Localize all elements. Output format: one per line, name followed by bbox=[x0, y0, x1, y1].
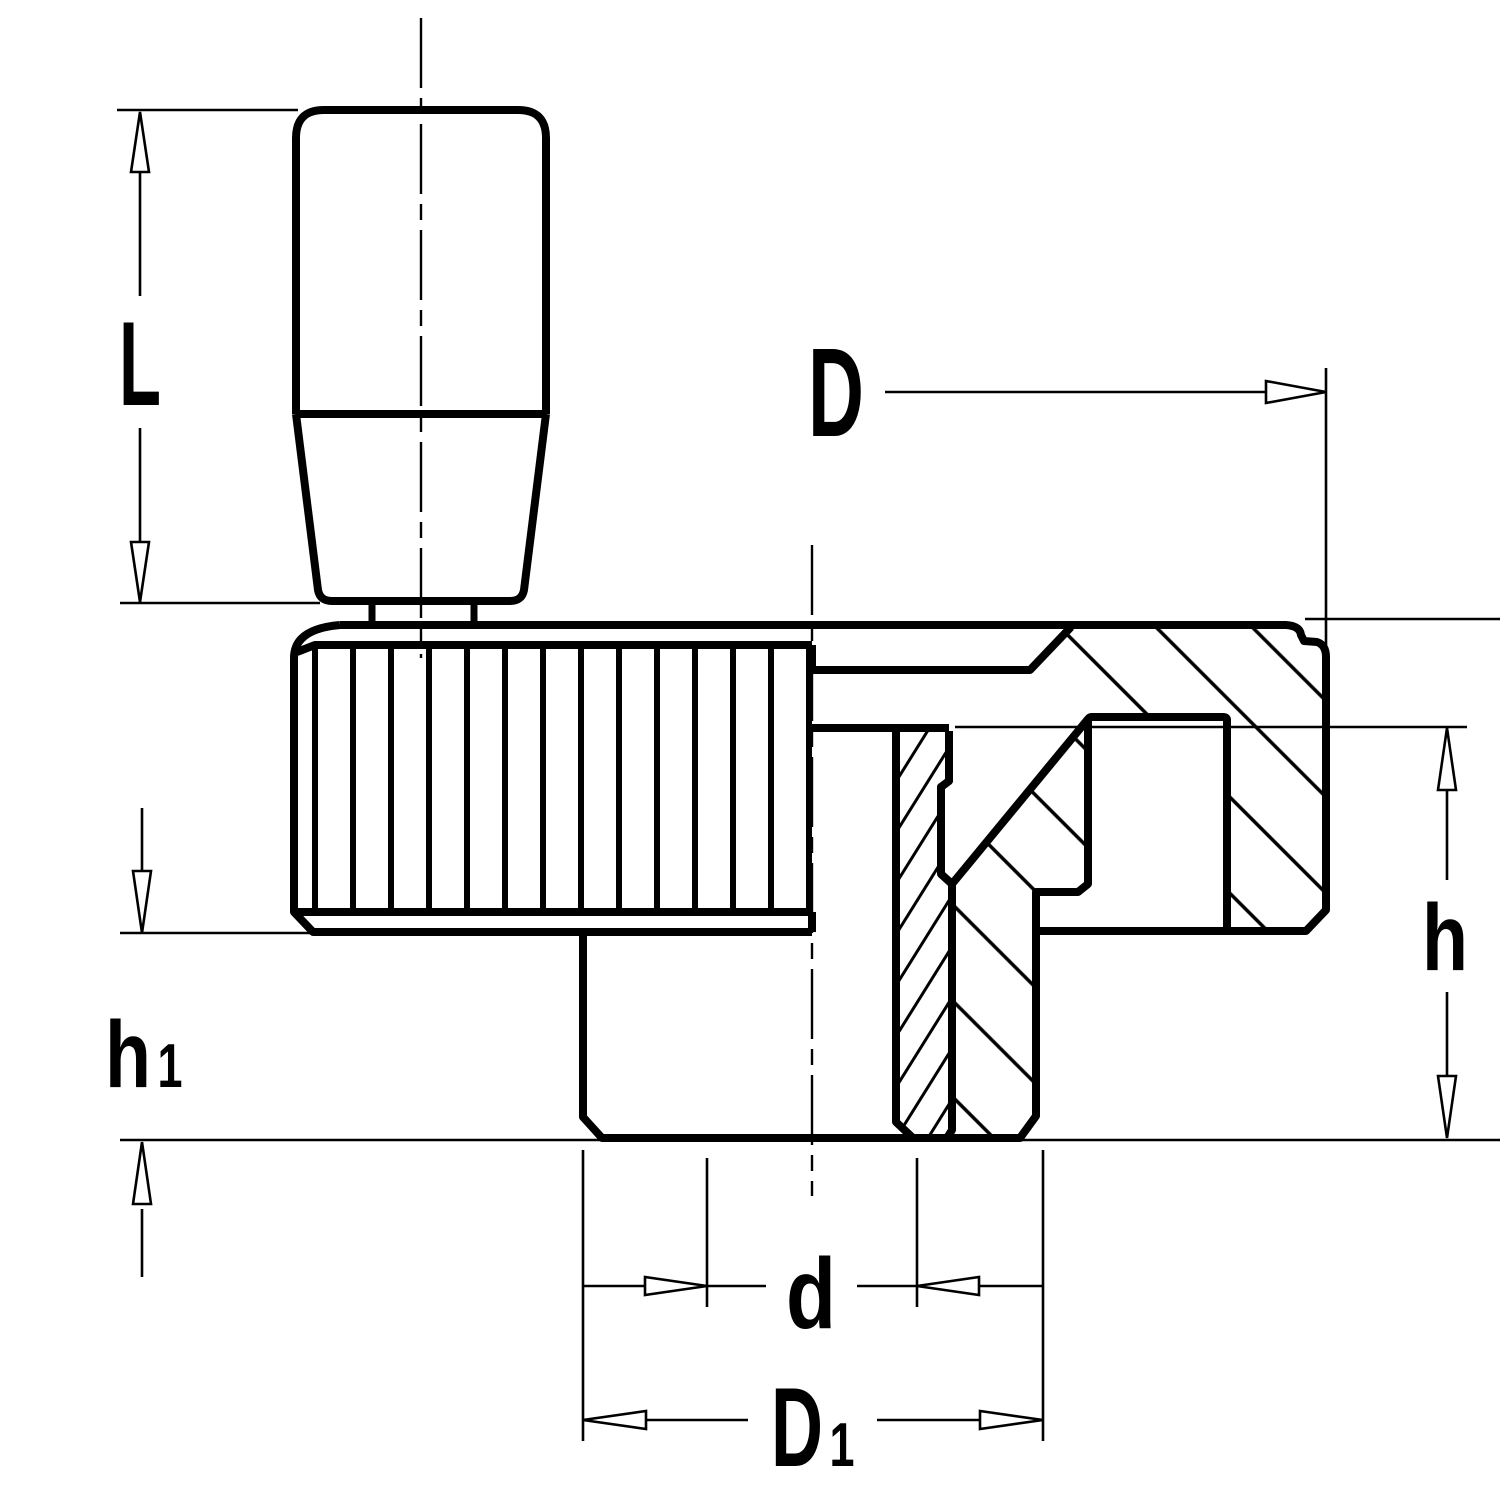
D-arrow-right bbox=[1266, 381, 1326, 403]
handwheel-section-drawing: L D h h 1 d D 1 bbox=[0, 0, 1500, 1500]
label-d: d bbox=[786, 1238, 836, 1350]
knurl-lines bbox=[315, 645, 809, 912]
h-arrow-up bbox=[1438, 728, 1456, 790]
D1-arrow-right bbox=[980, 1411, 1043, 1429]
disc-underside bbox=[812, 627, 1071, 670]
label-D: D bbox=[808, 322, 864, 463]
section-hatching bbox=[896, 627, 1326, 1138]
h-arrow-down bbox=[1438, 1076, 1456, 1138]
technical-drawing-canvas: L D h h 1 d D 1 bbox=[0, 0, 1500, 1500]
label-D1-main: D bbox=[771, 1365, 823, 1490]
label-h: h bbox=[1422, 885, 1468, 991]
D1-arrow-left bbox=[583, 1411, 646, 1429]
centerlines bbox=[421, 18, 812, 1196]
part-outlines bbox=[294, 110, 1326, 1138]
d-arrow-right-tip bbox=[917, 1277, 979, 1295]
label-h1-sub: 1 bbox=[158, 1032, 183, 1101]
label-h1-main: h bbox=[105, 1002, 151, 1108]
L-arrow-down bbox=[131, 542, 149, 602]
label-L: L bbox=[119, 297, 161, 431]
h1-arrow-up bbox=[133, 1142, 151, 1204]
h1-arrow-down bbox=[133, 871, 151, 933]
d-arrow-left-tip bbox=[645, 1277, 707, 1295]
label-D1-sub: 1 bbox=[830, 1411, 855, 1480]
L-arrow-up bbox=[131, 112, 149, 172]
